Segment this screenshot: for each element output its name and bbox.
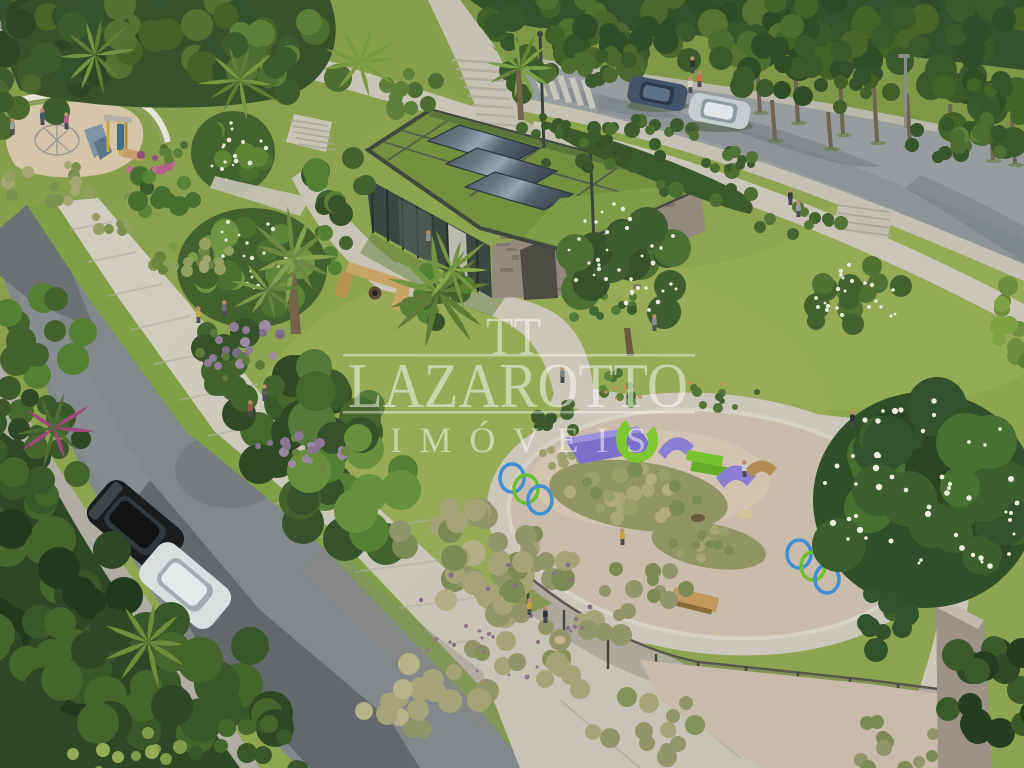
svg-text:IMÓVEIS: IMÓVEIS	[390, 420, 646, 460]
svg-text:LAZAROTTO: LAZAROTTO	[348, 350, 688, 421]
